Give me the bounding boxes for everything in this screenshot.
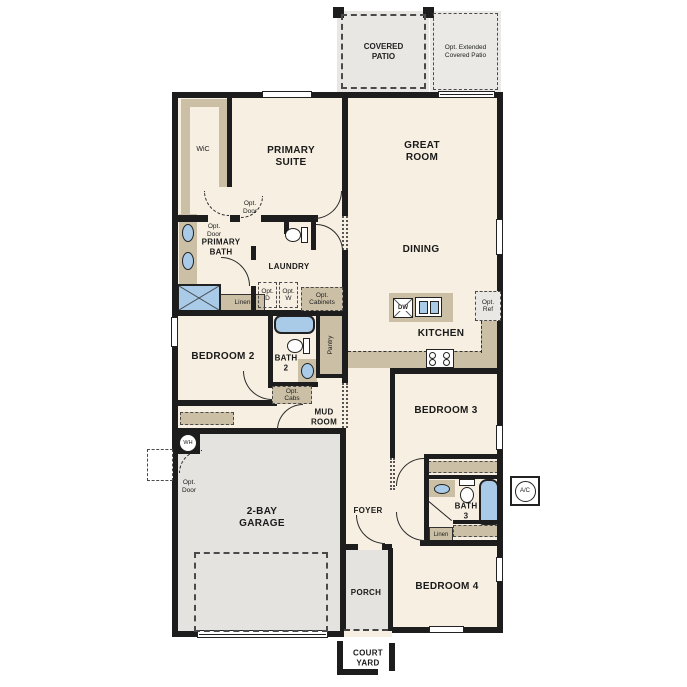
wall (172, 92, 178, 637)
window-line (440, 94, 493, 95)
bathtub-icon (479, 479, 499, 525)
room-label-court-yard: COURT YARD (353, 648, 383, 667)
toilet-icon (458, 479, 476, 503)
bg-patch (392, 633, 503, 643)
wall (230, 215, 240, 222)
bedroom3-closet-shelf (428, 461, 498, 473)
linen-label: Linen (434, 532, 449, 539)
window (429, 626, 464, 633)
opt-extended-patio: Opt. Extended Covered Patio (433, 13, 498, 90)
floor-plan: COVERED PATIO Opt. Extended Covered Pati… (0, 0, 687, 687)
room-label-mud-room: MUD ROOM (311, 407, 337, 426)
opt-cabs: Opt. Cabs (272, 386, 312, 404)
wall (497, 92, 503, 633)
sink-icon (182, 224, 194, 242)
wall (251, 286, 256, 312)
dishwasher-label: DW (397, 305, 409, 312)
covered-patio: COVERED PATIO (341, 14, 426, 89)
room-label-laundry: LAUNDRY (269, 262, 310, 272)
room-label-kitchen: KITCHEN (418, 328, 465, 340)
dishwasher-icon: DW (393, 298, 413, 318)
wall (340, 428, 346, 631)
opt-door-label: Opt. Door (207, 223, 221, 239)
sink-icon (301, 363, 314, 379)
opt-door-label: Opt. Door (182, 479, 196, 495)
cased-opening (342, 216, 348, 250)
ac-label: A/C (520, 488, 530, 495)
ac-unit-icon: A/C (510, 476, 540, 506)
stove-icon (426, 349, 454, 368)
room-label-bath2: BATH 2 (275, 353, 298, 372)
wall (227, 95, 232, 187)
window (496, 219, 503, 255)
opt-refrigerator: Opt. Ref (475, 291, 501, 321)
room-label-great-room: GREAT ROOM (404, 140, 440, 164)
room-label-garage: 2-BAY GARAGE (239, 506, 285, 530)
room-label-bedroom2: BEDROOM 2 (191, 351, 254, 363)
window (262, 91, 312, 98)
wall (390, 368, 503, 374)
linen-label: Linen (235, 299, 251, 306)
room-label-foyer: FOYER (353, 506, 382, 516)
room-label-primary-suite: PRIMARY SUITE (267, 145, 315, 169)
opt-cabs-label: Opt. Cabs (284, 388, 299, 403)
toilet-icon (287, 337, 311, 355)
wall (172, 400, 277, 406)
opt-door-label: Opt. Door (243, 200, 257, 216)
room-label-bath3: BATH 3 (455, 501, 478, 520)
island-sink-counter (415, 297, 442, 317)
room-label-primary-bath: PRIMARY BATH (202, 237, 241, 256)
opt-cabinets: Opt. Cabinets (301, 287, 343, 311)
window (171, 317, 178, 347)
window (496, 425, 503, 450)
toilet-icon (285, 226, 309, 244)
window (496, 557, 503, 582)
room-label-pantry: Pantry (327, 336, 335, 355)
wall (316, 316, 320, 376)
cased-opening (390, 458, 395, 490)
wall (316, 374, 348, 378)
opt-cabinets-label: Opt. Cabinets (309, 292, 335, 307)
opt-dryer-label: Opt. D (261, 288, 273, 303)
water-heater-icon: WH (176, 432, 200, 454)
kitchen-counter (348, 351, 498, 368)
wall (424, 454, 503, 459)
wall (342, 92, 348, 218)
wall (261, 215, 318, 222)
wall (342, 250, 348, 383)
covered-patio-label: COVERED PATIO (364, 42, 404, 60)
wic-shelf (181, 99, 190, 215)
wall (390, 374, 395, 458)
sink-icon (434, 484, 450, 494)
opt-washer-label: Opt. W (282, 288, 294, 303)
opt-dryer: Opt. D (258, 282, 277, 308)
porch-dashed-edge (344, 629, 388, 631)
courtyard-wall (337, 669, 378, 675)
wall (420, 540, 503, 546)
courtyard-wall (389, 643, 395, 671)
wall (388, 548, 393, 631)
room-label-dining: DINING (403, 244, 440, 256)
wall (172, 215, 208, 222)
room-label-wic: WiC (196, 146, 209, 154)
bathtub-icon (274, 315, 315, 334)
shower-icon (177, 284, 221, 312)
kitchen-counter (481, 321, 498, 353)
opt-refrigerator-label: Opt. Ref (482, 299, 494, 314)
sink-icon (419, 301, 428, 314)
room-label-porch: PORCH (351, 588, 381, 598)
room-label-bedroom4: BEDROOM 4 (415, 581, 478, 593)
opt-washer: Opt. W (279, 282, 298, 308)
sink-icon (182, 252, 194, 270)
garage-parking-outline (194, 552, 328, 632)
water-heater-label: WH (183, 440, 192, 446)
opt-extended-patio-label: Opt. Extended Covered Patio (445, 44, 487, 59)
garage-opt-storage (180, 412, 234, 425)
room-label-bedroom3: BEDROOM 3 (414, 405, 477, 417)
bedroom4-closet-shelf (453, 525, 498, 537)
opt-door-landing (147, 449, 173, 481)
cased-opening (342, 383, 348, 428)
wall (453, 520, 503, 524)
sink-icon (430, 301, 439, 314)
wall (251, 246, 256, 260)
garage-door-line (199, 634, 326, 635)
